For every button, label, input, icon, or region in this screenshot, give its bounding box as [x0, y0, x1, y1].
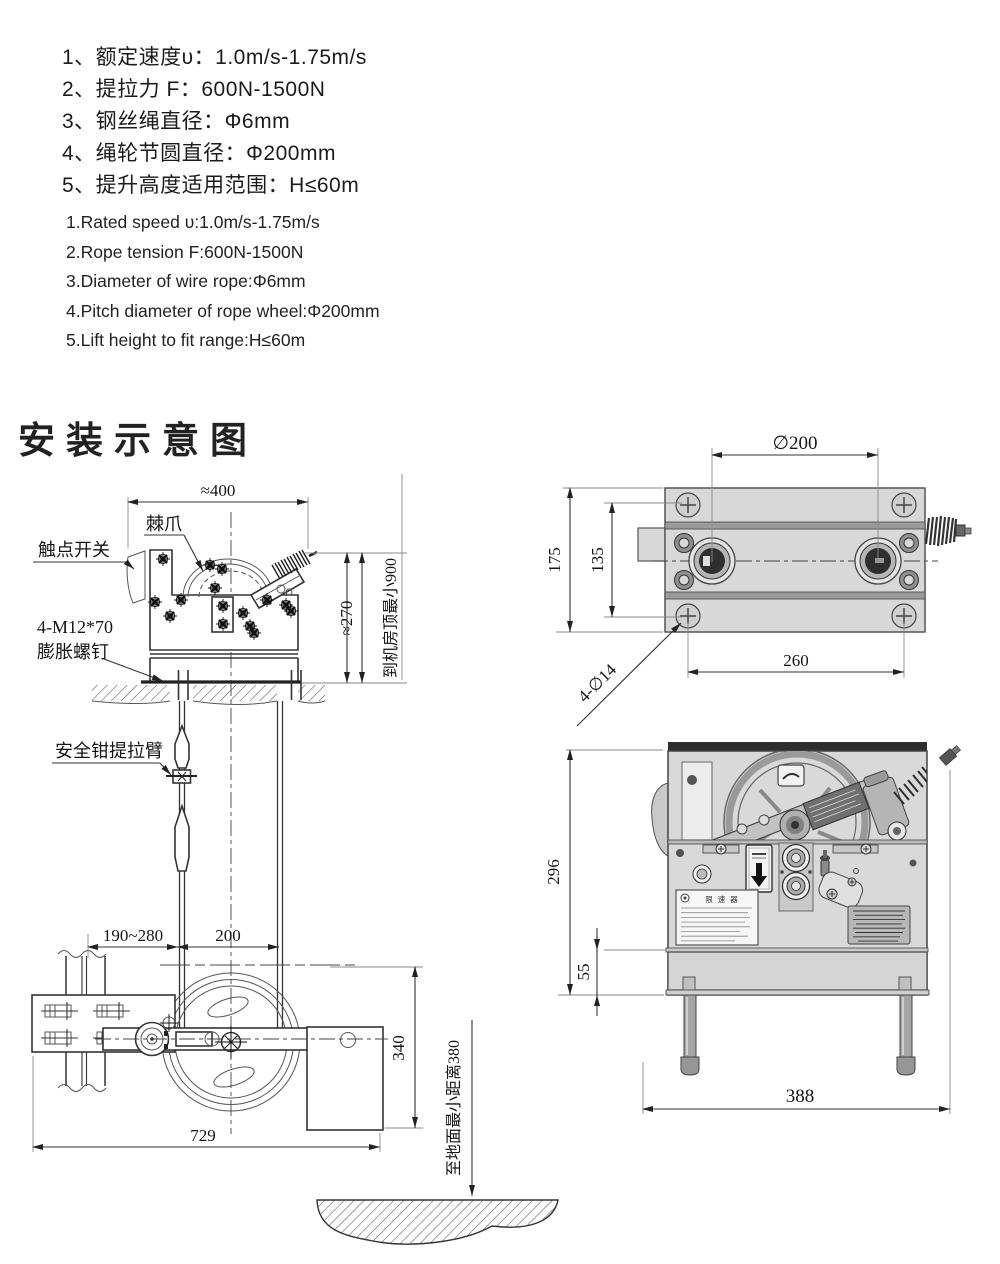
dim-top-width: ≈400: [201, 481, 236, 500]
spec-list-chinese: 1、额定速度υ：1.0m/s-1.75m/s 2、提拉力 F：600N-1500…: [62, 42, 367, 202]
top-rail-bar: [668, 742, 927, 751]
dim-ceiling-clearance: 到机房顶最小900: [382, 558, 400, 678]
nameplate-title: 限速器: [705, 895, 743, 904]
tension-device: [32, 973, 388, 1130]
installation-drawing: ≈400 ≈270 到机房顶最小900 190~280 200 340: [0, 430, 1000, 1264]
direction-switch: [746, 845, 772, 892]
tension-weight: [307, 1027, 383, 1130]
warning-plate: [848, 906, 910, 944]
dim-rope-gauge: 200: [215, 926, 241, 945]
safety-gear-linkage: [166, 726, 197, 871]
dim-bolt-row-span: 135: [588, 547, 607, 573]
label-anchor-bolt-name: 膨胀螺钉: [37, 642, 109, 662]
spec-item: 4.Pitch diameter of rope wheel:Φ200mm: [66, 297, 380, 327]
dim-body-height: ≈270: [337, 601, 356, 636]
nameplate: 限速器: [676, 890, 758, 945]
spec-item: 1.Rated speed υ:1.0m/s-1.75m/s: [66, 208, 380, 238]
dim-rail-to-rope: 190~280: [103, 926, 163, 945]
label-anchor-bolt-spec: 4-M12*70: [37, 617, 113, 637]
spec-list-english: 1.Rated speed υ:1.0m/s-1.75m/s 2.Rope te…: [66, 208, 380, 356]
dim-base-height: 55: [574, 964, 593, 981]
pit-floor: [317, 1200, 558, 1244]
contact-switch-outline: [127, 551, 145, 603]
side-spring-tip: [939, 744, 961, 765]
top-view-spring: [926, 516, 971, 546]
rope-guard-block: [638, 528, 665, 561]
front-view-dimensions: ≈400 ≈270 到机房顶最小900 190~280 200 340: [33, 474, 472, 1196]
spec-item: 5、提升高度适用范围：H≤60m: [62, 170, 367, 202]
side-view: 限速器: [544, 742, 962, 1114]
dim-overall-width-side: 388: [786, 1086, 815, 1107]
dim-tensioner-height: 340: [389, 1035, 408, 1061]
side-base-and-legs: [666, 948, 929, 1075]
dim-body-depth: 175: [545, 547, 564, 573]
spec-item: 5.Lift height to fit range:H≤60m: [66, 326, 380, 356]
dim-overall-height: 296: [544, 859, 563, 885]
dim-mount-holes: 4-∅14: [574, 660, 620, 706]
spec-item: 2、提拉力 F：600N-1500N: [62, 74, 367, 106]
spec-item: 3、钢丝绳直径：Φ6mm: [62, 106, 367, 138]
label-safety-gear-arm: 安全钳提拉臂: [55, 741, 163, 761]
front-installation-view: ≈400 ≈270 到机房顶最小900 190~280 200 340: [32, 474, 558, 1244]
spec-item: 4、绳轮节圆直径：Φ200mm: [62, 138, 367, 170]
top-view: ∅200 175 135 260 4-∅14: [545, 433, 971, 726]
label-pawl: 棘爪: [146, 514, 182, 534]
spec-item: 1、额定速度υ：1.0m/s-1.75m/s: [62, 42, 367, 74]
spec-item: 2.Rope tension F:600N-1500N: [66, 238, 380, 268]
section-title: 安装示意图: [18, 410, 258, 464]
governor-front-body: [127, 550, 317, 682]
dim-bolt-col-span: 260: [783, 651, 809, 670]
machine-room-slab: [92, 670, 325, 705]
dim-floor-clearance: 至地面最小距离380: [445, 1040, 463, 1176]
spec-item: 3.Diameter of wire rope:Φ6mm: [66, 267, 380, 297]
page: 1、额定速度υ：1.0m/s-1.75m/s 2、提拉力 F：600N-1500…: [0, 0, 1000, 1264]
side-cover-lobe: [652, 783, 668, 856]
label-contact-switch: 触点开关: [38, 540, 110, 560]
dim-overall-width: 729: [190, 1126, 216, 1145]
dim-wheel-pitch: ∅200: [772, 433, 817, 454]
